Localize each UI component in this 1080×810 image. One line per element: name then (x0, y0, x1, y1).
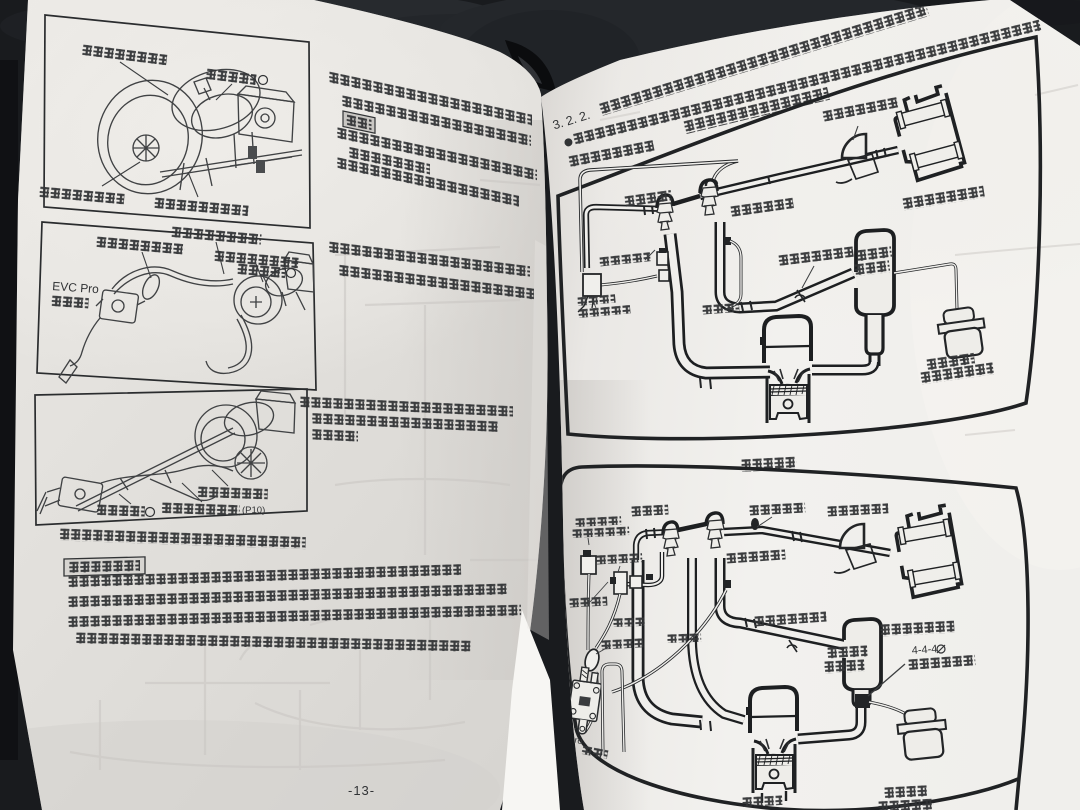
svg-text:(P10): (P10) (242, 505, 265, 516)
svg-text:4-4-4: 4-4-4 (911, 643, 937, 657)
svg-text:-13-: -13- (348, 783, 375, 798)
